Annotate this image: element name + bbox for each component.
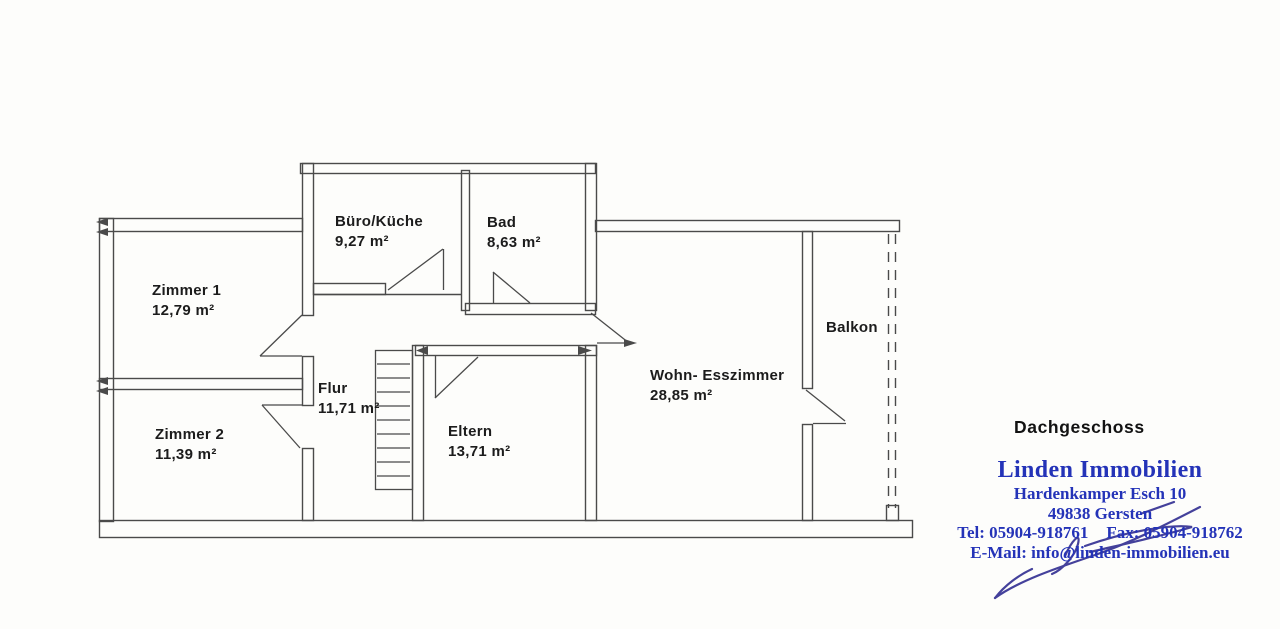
room-label-flur: Flur 11,71 m²	[318, 379, 380, 419]
room-label-eltern: Eltern 13,71 m²	[448, 422, 510, 462]
floorplan-page: Zimmer 1 12,79 m² Zimmer 2 11,39 m² Büro…	[0, 0, 1280, 629]
room-label-zimmer2: Zimmer 2 11,39 m²	[155, 425, 224, 465]
agency-street: Hardenkamper Esch 10	[950, 484, 1250, 504]
room-name: Wohn- Esszimmer	[650, 366, 784, 386]
room-area: 13,71 m²	[448, 442, 510, 462]
balcony-dashed-edge	[889, 234, 896, 508]
room-area: 11,39 m²	[155, 445, 224, 465]
agency-phone-fax: Tel: 05904-918761Fax: 05904-918762	[950, 523, 1250, 543]
room-name: Bad	[487, 213, 541, 233]
room-area: 28,85 m²	[650, 386, 784, 406]
agency-city: 49838 Gersten	[950, 504, 1250, 524]
room-label-bad: Bad 8,63 m²	[487, 213, 541, 253]
room-label-zimmer1: Zimmer 1 12,79 m²	[152, 281, 221, 321]
room-name: Flur	[318, 379, 380, 399]
room-label-buero-kueche: Büro/Küche 9,27 m²	[335, 212, 423, 252]
room-area: 11,71 m²	[318, 399, 380, 419]
room-label-balkon: Balkon	[826, 318, 878, 338]
room-name: Zimmer 1	[152, 281, 221, 301]
agency-fax: Fax: 05904-918762	[1106, 523, 1242, 542]
room-name: Eltern	[448, 422, 510, 442]
hallway-wall	[303, 164, 314, 521]
room-area: 8,63 m²	[487, 233, 541, 253]
room-name: Balkon	[826, 318, 878, 338]
agency-stamp: Linden Immobilien Hardenkamper Esch 10 4…	[950, 456, 1250, 562]
agency-phone: Tel: 05904-918761	[957, 523, 1088, 542]
room-area: 12,79 m²	[152, 301, 221, 321]
room-name: Büro/Küche	[335, 212, 423, 232]
floor-title: Dachgeschoss	[1014, 417, 1145, 438]
stairs	[376, 351, 413, 490]
room-name: Zimmer 2	[155, 425, 224, 445]
agency-name: Linden Immobilien	[950, 456, 1250, 484]
room-area: 9,27 m²	[335, 232, 423, 252]
agency-email: E-Mail: info@linden-immobilien.eu	[950, 543, 1250, 563]
room-label-wohn-esszimmer: Wohn- Esszimmer 28,85 m²	[650, 366, 784, 406]
